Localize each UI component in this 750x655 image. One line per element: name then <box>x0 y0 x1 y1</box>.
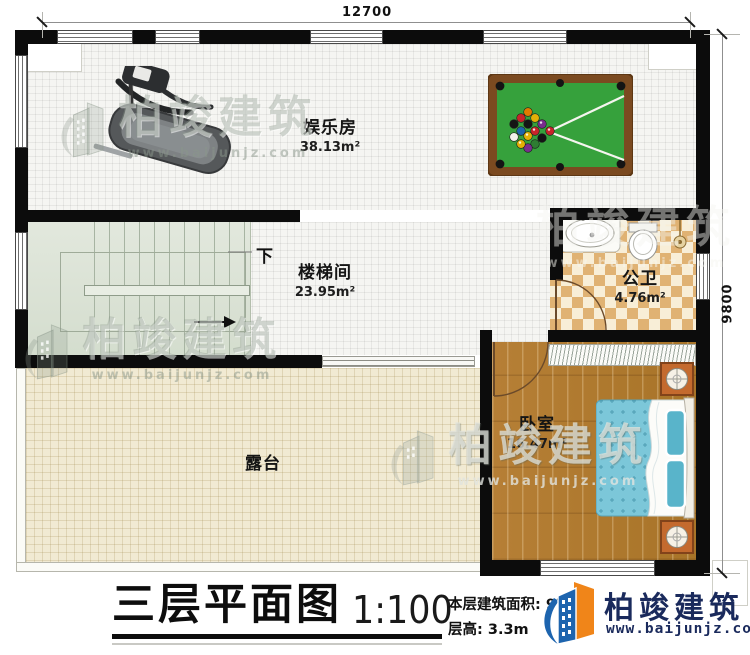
window <box>696 253 710 300</box>
wall <box>567 30 710 44</box>
terrace-railing-bottom <box>16 562 482 572</box>
wall <box>550 208 710 220</box>
bed <box>596 396 696 520</box>
room-label-terrace: 露台 <box>245 455 281 475</box>
room-label-bedroom: 卧室 16.47m² <box>507 416 567 452</box>
floor-area-value: 97 <box>546 597 566 613</box>
room-area: 4.76m² <box>614 291 665 306</box>
window <box>483 30 567 44</box>
wall <box>655 560 710 576</box>
wall <box>15 355 322 368</box>
wall <box>480 330 492 576</box>
axis-bracket <box>648 40 702 70</box>
plan-title: 三层平面图 <box>112 582 342 629</box>
window <box>15 232 28 310</box>
room-label-bathroom: 公卫 4.76m² <box>614 270 665 306</box>
room-name: 露台 <box>245 455 281 475</box>
floor-area-label: 本层建筑面积: <box>448 597 541 613</box>
room-area: 16.47m² <box>507 437 567 452</box>
floor-plan-page: 娱乐房 38.13m² 楼梯间 23.95m² 公卫 4.76m² 卧室 16.… <box>0 0 750 655</box>
pillow <box>666 410 685 456</box>
terrace-railing-left <box>16 368 26 572</box>
window <box>57 30 133 44</box>
room-name: 楼梯间 <box>295 264 355 284</box>
wall <box>548 330 710 342</box>
axis-bracket <box>26 40 82 72</box>
nightstand <box>660 362 694 396</box>
brand-logo-icon <box>538 576 600 648</box>
title-underline <box>112 634 442 639</box>
window <box>540 560 655 576</box>
billiard-table <box>488 74 633 176</box>
staircase <box>28 222 251 355</box>
window <box>15 55 28 148</box>
wall <box>383 30 483 44</box>
wall <box>480 560 540 576</box>
room-name: 卧室 <box>507 416 567 436</box>
nightstand <box>660 520 694 554</box>
brand-website: www.baijunjz.com <box>606 621 750 637</box>
wall <box>15 210 300 222</box>
dimension-top-value: 12700 <box>342 5 392 20</box>
floor-height-value: 3.3m <box>488 622 529 638</box>
window <box>155 30 200 44</box>
room-area: 23.95m² <box>295 285 355 300</box>
room-name: 公卫 <box>614 270 665 290</box>
treadmill <box>90 66 245 191</box>
stairs-down-label: 下 <box>256 242 273 267</box>
sliding-door <box>322 356 475 367</box>
plan-scale: 1:100 <box>352 588 453 632</box>
floor-height-label: 层高: <box>448 622 483 638</box>
wall <box>15 30 28 55</box>
pillow <box>666 460 685 508</box>
dimension-right-value: 9800 <box>721 283 736 323</box>
wall <box>133 30 155 44</box>
room-label-stairwell: 楼梯间 23.95m² <box>295 264 355 300</box>
floor-height-line: 层高: 3.3m <box>448 618 529 639</box>
dimension-line-top <box>42 22 690 23</box>
wall <box>200 30 310 44</box>
floor-area-unit: m² <box>566 597 587 613</box>
stair-handrail <box>84 285 250 296</box>
room-area: 38.13m² <box>300 140 360 155</box>
title-underline-thin <box>112 643 442 645</box>
window <box>310 30 383 44</box>
wall <box>550 208 563 280</box>
room-label-entertainment: 娱乐房 38.13m² <box>300 119 360 155</box>
floor-area-line: 本层建筑面积: 97m² <box>448 593 588 614</box>
room-name: 娱乐房 <box>300 119 360 139</box>
